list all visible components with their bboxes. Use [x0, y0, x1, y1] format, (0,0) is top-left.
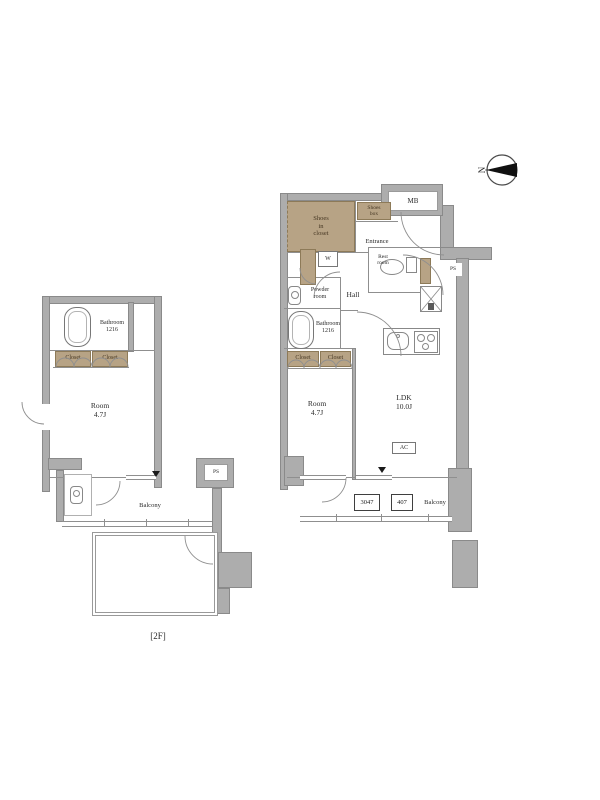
rail-post [336, 514, 337, 522]
pipe-cabinet [420, 258, 431, 284]
partition-line [284, 308, 341, 309]
balcony-rail [62, 521, 216, 527]
shoes-box: Shoes box [357, 202, 391, 220]
ac-box: AC [392, 442, 416, 454]
balcony-label: Balcony [414, 497, 456, 508]
bathtub-icon [64, 307, 91, 347]
rail-post [146, 519, 147, 527]
bathroom-label: Bathroom 1216 [313, 318, 343, 338]
burner-icon [422, 343, 429, 350]
burner-icon [417, 334, 425, 342]
closet-label: Closet [102, 355, 117, 362]
bathroom-label: Bathroom 1216 [92, 316, 132, 338]
wall [452, 540, 478, 588]
shoes-in-closet-label: Shoes [313, 215, 329, 223]
wall [48, 458, 82, 470]
room-label: Room 4.7J [294, 396, 340, 422]
rail-post [381, 514, 382, 522]
ldk-label: LDK 10.0J [382, 390, 426, 416]
pipe-space: PS [204, 464, 228, 481]
rail-post [188, 519, 189, 527]
pipe-space: PS [444, 263, 462, 276]
door-gap [42, 404, 50, 430]
balcony-hatch-1: 3047 [354, 494, 380, 511]
window [356, 475, 392, 480]
entrance-label: Entrance [356, 236, 398, 247]
room-ldk-wall [352, 348, 356, 480]
restroom-label: Rest room [369, 252, 397, 268]
orientation-marker [378, 467, 386, 473]
closet-2: Closet [320, 351, 351, 367]
balcony-hatch-2: 407 [391, 494, 413, 511]
room-label: Room 4.7J [77, 398, 123, 424]
meter-box-label: MB [408, 197, 419, 205]
door-arc-left-entrance [22, 402, 44, 424]
washing-machine-label: W [325, 256, 331, 262]
washbasin-bowl [291, 291, 299, 299]
wall [216, 588, 230, 614]
balcony-label: Balcony [128, 500, 172, 511]
window [300, 475, 346, 480]
washbasin-bowl [73, 490, 80, 497]
washing-machine: W [318, 251, 338, 267]
partition-line [368, 292, 421, 293]
toilet-tank-icon [406, 257, 417, 273]
hall-closet [300, 249, 316, 285]
burner-icon [427, 334, 435, 342]
hall-label: Hall [338, 288, 368, 300]
wall [154, 296, 162, 488]
shoes-in-closet: Shoes in closet [287, 201, 355, 252]
partition-line [53, 367, 129, 368]
partition-line [284, 348, 354, 349]
floor-note: [2F] [136, 629, 180, 643]
balcony-rail [300, 516, 452, 522]
closet-label: Closet [328, 355, 343, 362]
door-arc-entrance [401, 212, 444, 255]
compass-north-label: N [477, 166, 487, 173]
pipe-space-label: PS [450, 266, 456, 273]
wall [456, 258, 469, 485]
orientation-marker [152, 471, 160, 477]
door-arc-ldk-balcony [322, 478, 346, 502]
closet-1: Closet [55, 351, 91, 367]
rail-post [428, 514, 429, 522]
closet-2: Closet [92, 351, 128, 367]
compass-icon: N [477, 155, 517, 185]
wall [284, 456, 304, 486]
partition-line [340, 310, 358, 311]
refrigerator-mark [428, 303, 434, 310]
wall [46, 296, 162, 304]
faucet-icon [396, 334, 400, 338]
rail-post [104, 519, 105, 527]
closet-label: Closet [295, 355, 310, 362]
closet-1: Closet [287, 351, 319, 367]
ac-label: AC [400, 445, 408, 451]
wall [218, 552, 252, 588]
floor-plan-canvas: MB Shoes in closet Shoes box W [0, 0, 600, 800]
powder-room-label: Powder room [300, 285, 340, 303]
terrace-inner-line [95, 535, 215, 613]
partition-line [287, 368, 353, 369]
balcony-hatch-label: 407 [397, 499, 407, 506]
bathtub-icon [288, 311, 314, 349]
closet-label: Closet [65, 355, 80, 362]
balcony-hatch-label: 3047 [361, 499, 374, 506]
pipe-space-label: PS [213, 469, 219, 476]
door-arc-left-room-balcony [96, 481, 120, 505]
partition-line [368, 247, 440, 248]
entrance-step-line [356, 221, 398, 222]
